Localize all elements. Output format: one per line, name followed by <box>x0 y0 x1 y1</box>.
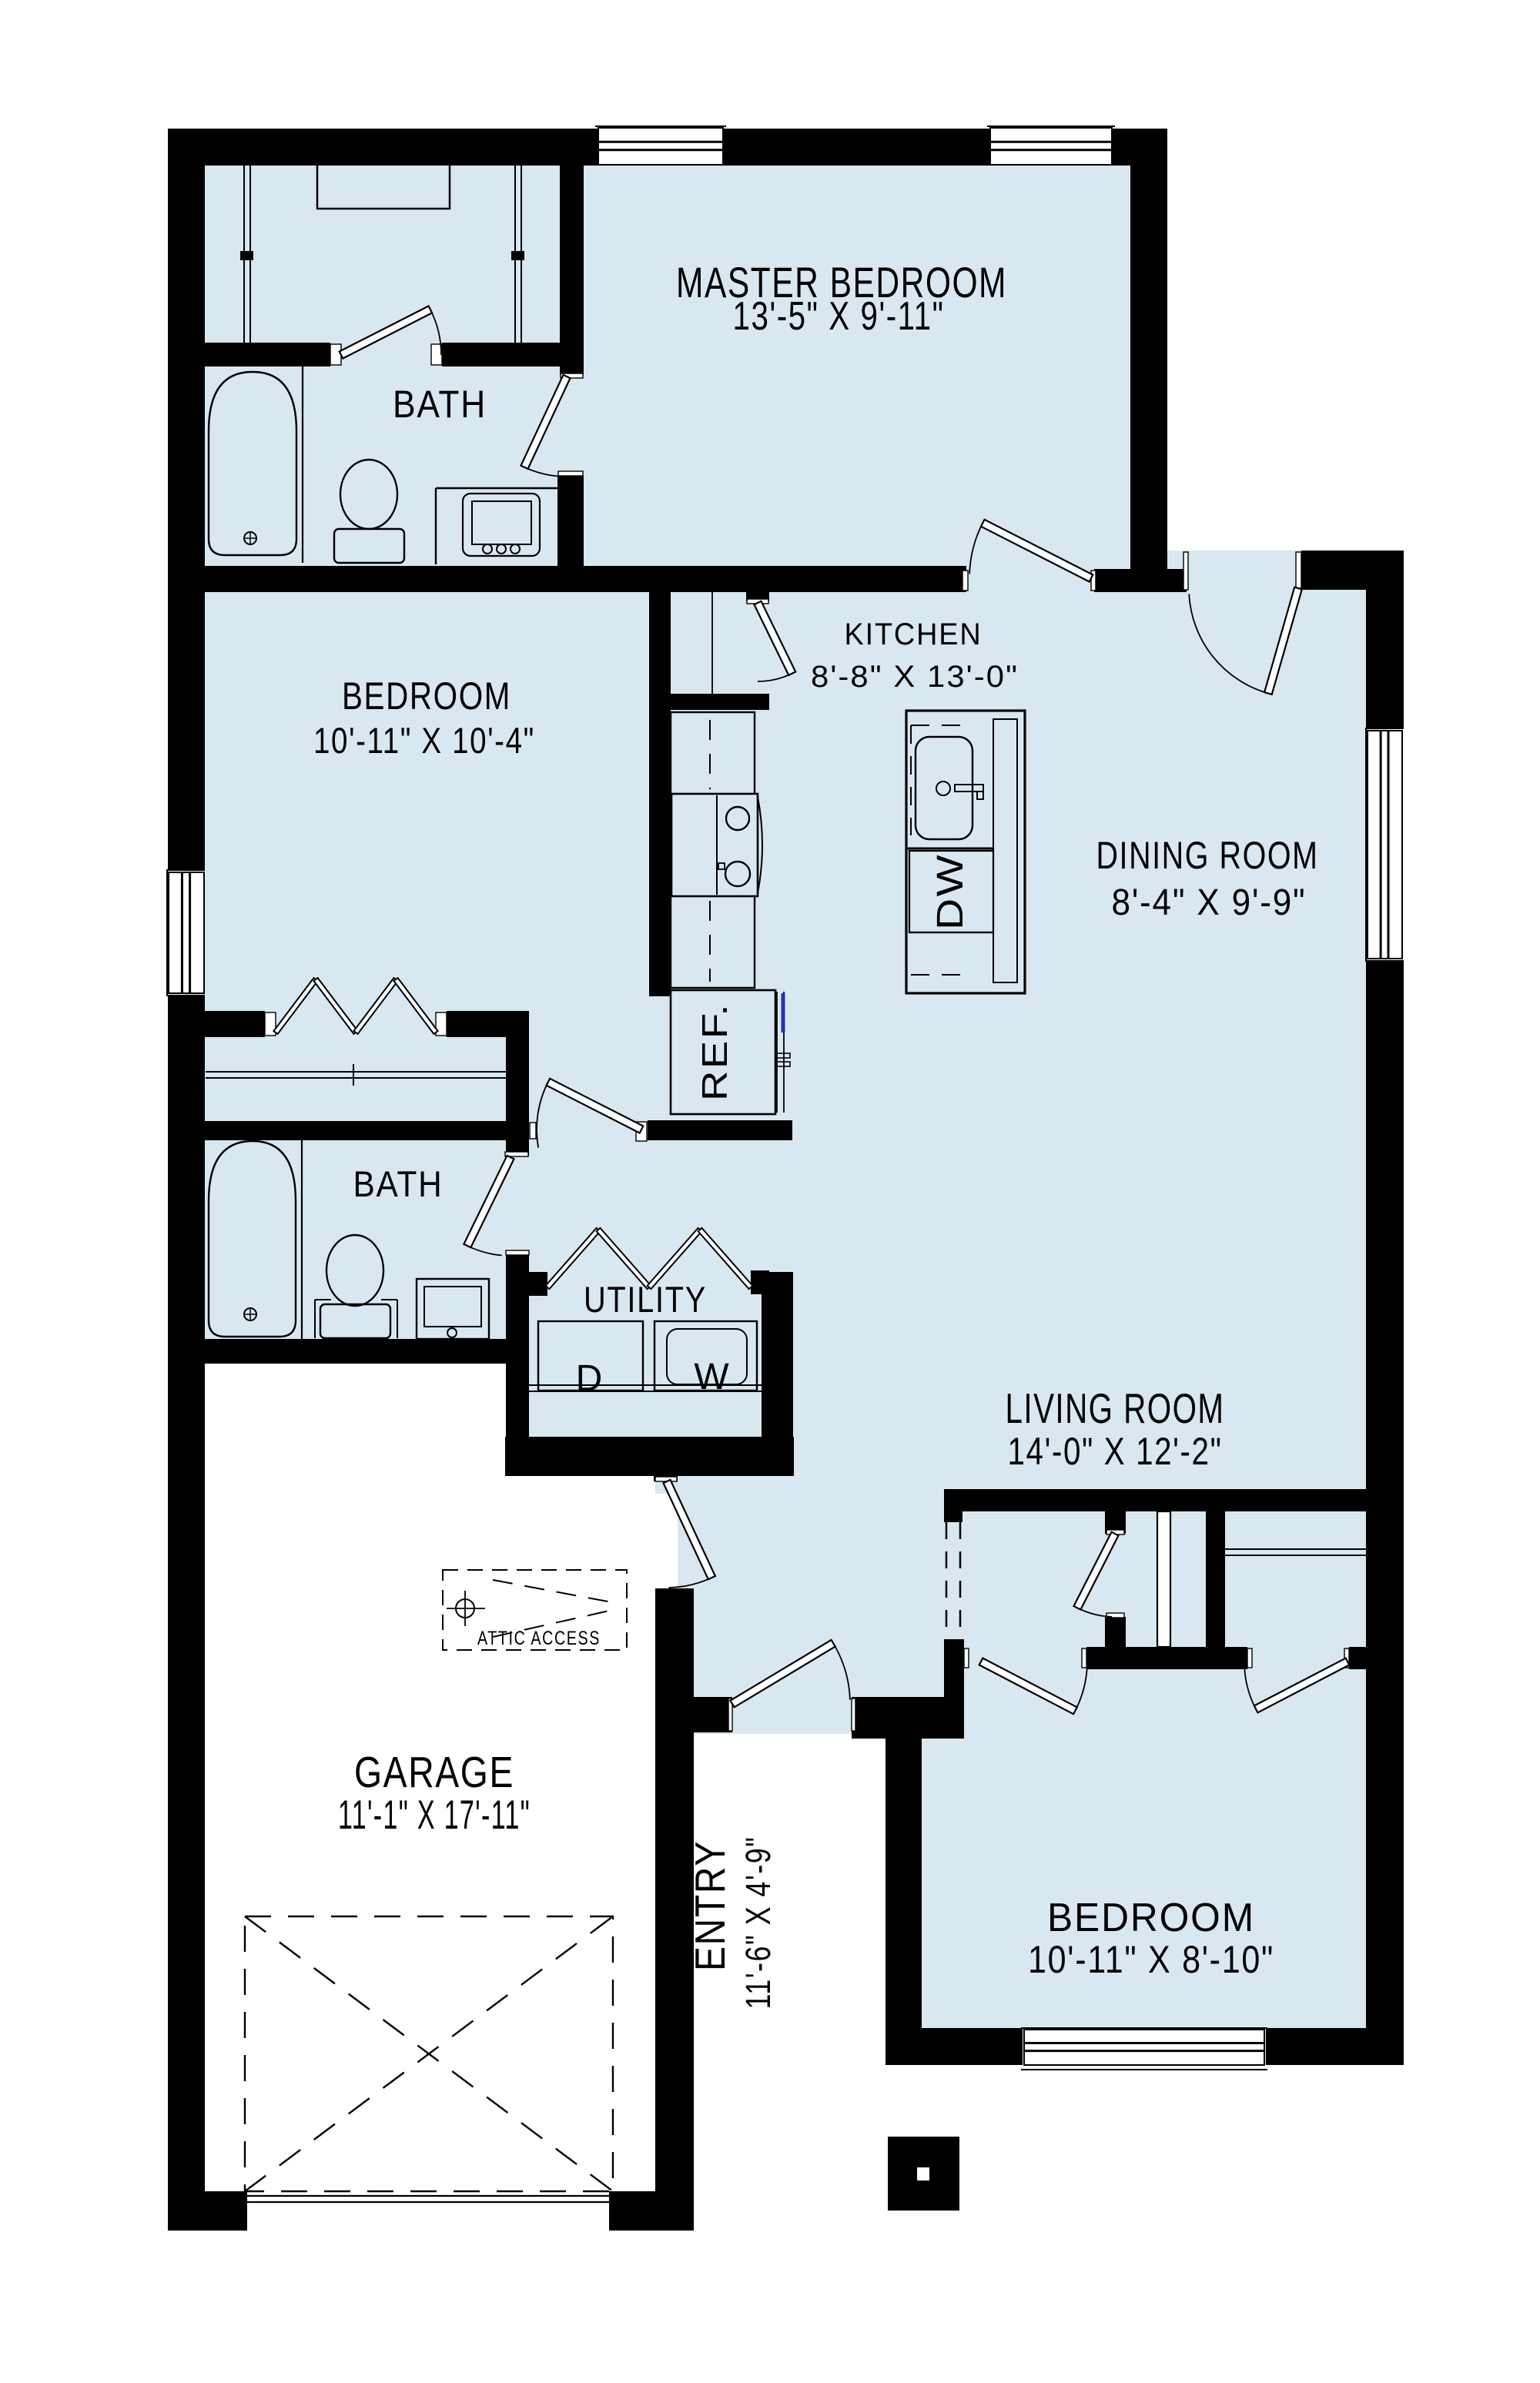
svg-text:10'-11" X 8'-10": 10'-11" X 8'-10" <box>1028 1938 1274 1981</box>
svg-text:LIVING ROOM: LIVING ROOM <box>1006 1384 1225 1432</box>
svg-text:D: D <box>576 1358 604 1399</box>
svg-text:BEDROOM: BEDROOM <box>342 674 511 718</box>
svg-text:11'-1" X 17'-11": 11'-1" X 17'-11" <box>338 1792 531 1838</box>
svg-text:REF.: REF. <box>695 1002 735 1101</box>
svg-text:GARAGE: GARAGE <box>354 1748 514 1797</box>
svg-text:W: W <box>694 1357 730 1397</box>
svg-text:13'-5" X 9'-11": 13'-5" X 9'-11" <box>733 294 945 339</box>
svg-text:DW: DW <box>930 853 971 930</box>
svg-text:BATH: BATH <box>353 1163 444 1204</box>
svg-text:BEDROOM: BEDROOM <box>1047 1896 1255 1940</box>
svg-text:KITCHEN: KITCHEN <box>845 618 983 651</box>
svg-text:8'-4" X 9'-9": 8'-4" X 9'-9" <box>1112 882 1307 923</box>
svg-text:ATTIC ACCESS: ATTIC ACCESS <box>477 1628 601 1649</box>
svg-text:8'-8" X 13'-0": 8'-8" X 13'-0" <box>811 660 1019 694</box>
svg-text:UTILITY: UTILITY <box>584 1279 707 1320</box>
svg-text:14'-0" X 12'-2": 14'-0" X 12'-2" <box>1008 1430 1223 1473</box>
svg-text:ENTRY: ENTRY <box>686 1840 734 1971</box>
svg-text:11'-6" X 4'-9": 11'-6" X 4'-9" <box>738 1836 778 2010</box>
svg-text:10'-11" X 10'-4": 10'-11" X 10'-4" <box>313 720 535 761</box>
svg-text:BATH: BATH <box>393 383 487 426</box>
svg-text:DINING ROOM: DINING ROOM <box>1096 834 1319 877</box>
